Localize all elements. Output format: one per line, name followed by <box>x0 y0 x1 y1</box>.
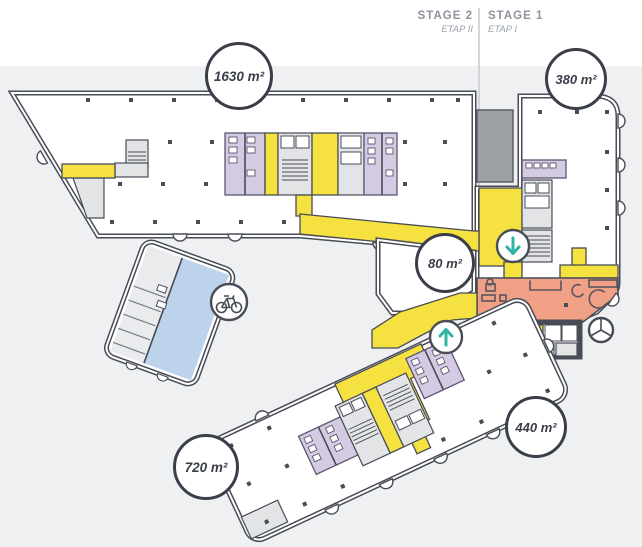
stage-2-label: STAGE 2 <box>380 10 473 24</box>
area-badge-380: 380 m² <box>545 48 607 110</box>
area-badge-720-label: 720 m² <box>185 460 228 475</box>
area-badge-80-label: 80 m² <box>428 256 462 271</box>
stage-1-header: STAGE 1 ETAP I <box>488 10 581 35</box>
area-badge-80: 80 m² <box>415 233 475 293</box>
area-badge-440-label: 440 m² <box>515 420 556 435</box>
area-badge-720: 720 m² <box>173 434 239 500</box>
area-badge-1630: 1630 m² <box>205 42 273 110</box>
stage-1-sublabel: ETAP I <box>488 24 581 35</box>
stage-2-header: STAGE 2 ETAP II <box>380 10 473 35</box>
area-badge-1630-label: 1630 m² <box>214 69 264 84</box>
arrow-down-icon <box>497 230 529 262</box>
floor-plan-page: STAGE 2 ETAP II STAGE 1 ETAP I 1630 m² 3… <box>0 0 642 547</box>
area-badge-440: 440 m² <box>505 396 567 458</box>
arrow-up-icon <box>430 321 462 353</box>
stage-1-label: STAGE 1 <box>488 10 581 24</box>
bicycle-icon <box>211 284 247 320</box>
stage-2-sublabel: ETAP II <box>380 24 473 35</box>
area-badge-380-label: 380 m² <box>555 72 596 87</box>
service-shaft-block <box>477 110 513 182</box>
corridor-left <box>62 164 115 178</box>
